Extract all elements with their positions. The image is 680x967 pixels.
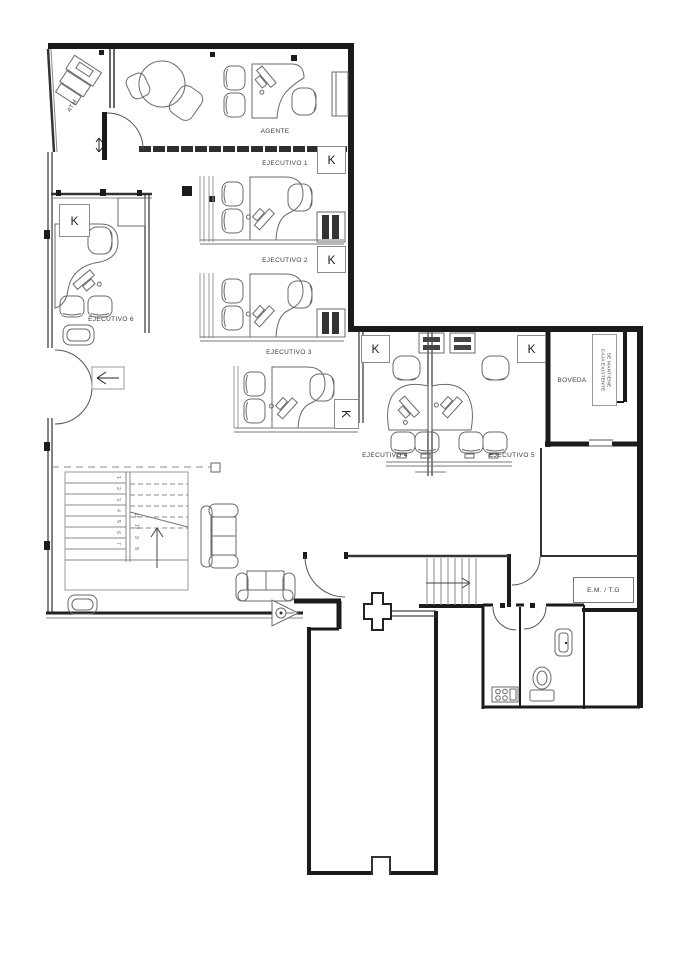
- k-marker-ejecutivo-4: K: [361, 335, 390, 363]
- room-label-boveda: BOVEDA: [557, 377, 586, 384]
- em-tg-box: E.M. / T.G: [573, 577, 634, 603]
- stair-number: 2: [115, 487, 120, 490]
- room-label-ejecutivo-4: EJECUTIVO 4: [362, 452, 408, 459]
- agente-furniture: [124, 61, 348, 124]
- room-label-ejecutivo-2: EJECUTIVO 2: [262, 257, 308, 264]
- room-label-em-tg: E.M. / T.G: [587, 587, 620, 594]
- stair-number: 3: [115, 498, 120, 501]
- stair-number: 7: [115, 542, 120, 545]
- stair-number: 4: [115, 509, 120, 512]
- ejecutivo2-furniture: [200, 273, 345, 341]
- entrance-arrow: [92, 367, 124, 389]
- doors: [55, 112, 546, 630]
- room-label-agente: AGENTE: [261, 128, 290, 135]
- stair-number: 10: [133, 524, 138, 530]
- stair-number: 11: [133, 513, 138, 518]
- triangle-marker: [272, 600, 298, 626]
- vault-note-text: SE MANTIENE CAJA EXISTENTE: [599, 335, 610, 405]
- column: [364, 593, 391, 630]
- vault-note-box: SE MANTIENE CAJA EXISTENTE: [592, 334, 617, 406]
- k-marker-ejecutivo-6: K: [59, 204, 90, 237]
- room-label-ejecutivo-6: EJECUTIVO 6: [88, 316, 134, 323]
- k-marker-ejecutivo-1: K: [317, 146, 346, 174]
- k-marker-ejecutivo-5: K: [517, 335, 546, 363]
- lobby-bin: [68, 595, 97, 614]
- room-label-ejecutivo-5: EJECUTIVO 5: [489, 452, 535, 459]
- stair-number: 8: [133, 547, 138, 550]
- stair-number: 9: [133, 536, 138, 539]
- atm-machine: [52, 55, 101, 107]
- stair-number: 6: [115, 531, 120, 534]
- k-marker-ejecutivo-3: K: [334, 399, 359, 429]
- stair-number: 5: [115, 520, 120, 523]
- floor-plan: AGENTE EJECUTIVO 1 EJECUTIVO 2 EJECUTIVO…: [0, 0, 680, 967]
- bathroom-fixtures: [492, 629, 572, 702]
- k-marker-ejecutivo-2: K: [317, 246, 346, 273]
- ejecutivo1-furniture: [200, 176, 345, 244]
- room-label-ejecutivo-1: EJECUTIVO 1: [262, 160, 308, 167]
- lobby-sofas: [201, 504, 295, 601]
- stair-number: 1: [115, 476, 120, 479]
- room-label-ejecutivo-3: EJECUTIVO 3: [266, 349, 312, 356]
- secondary-stair: [426, 558, 476, 605]
